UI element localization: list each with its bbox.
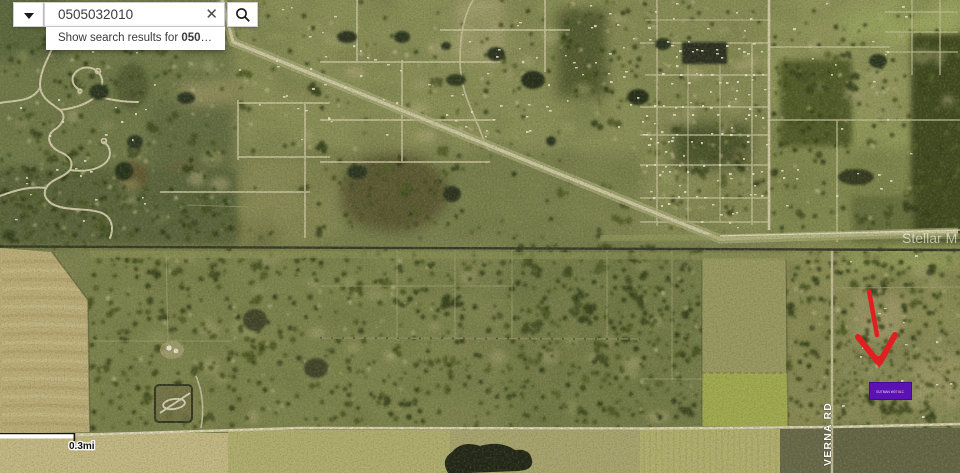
svg-text:0.3mi: 0.3mi — [69, 441, 95, 452]
svg-text:Stellar M: Stellar M — [902, 230, 957, 246]
svg-text:VERNA RD: VERNA RD — [822, 402, 834, 466]
svg-text:GUTMAN W07 LLC: GUTMAN W07 LLC — [876, 390, 905, 394]
